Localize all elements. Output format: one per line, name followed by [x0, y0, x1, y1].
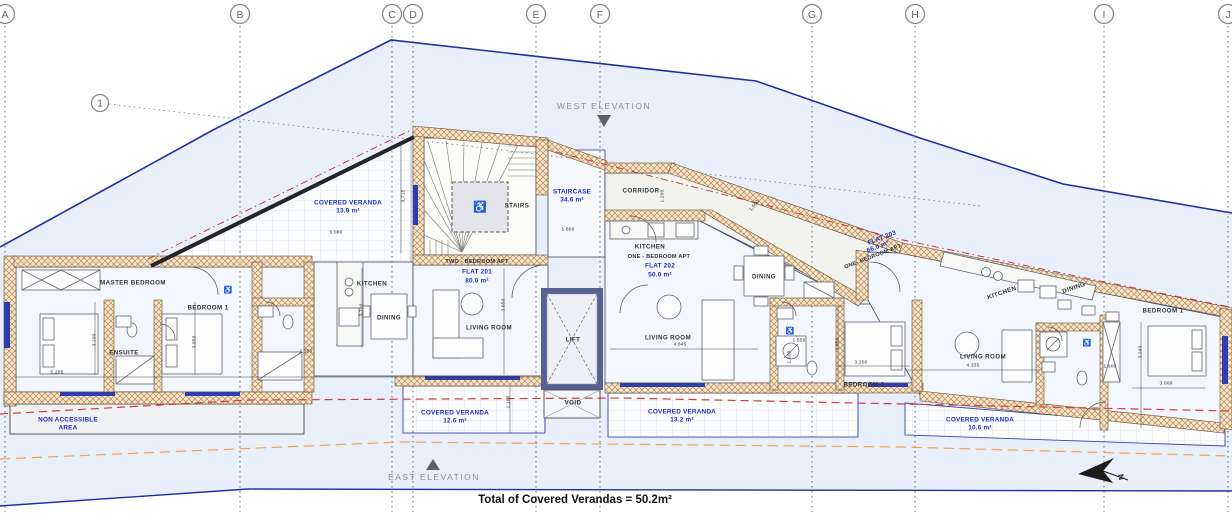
toilet [283, 315, 293, 329]
grid-marker-label-I: I [1103, 9, 1106, 21]
dining-table [744, 256, 784, 296]
grid-marker-label-F: F [597, 9, 603, 21]
sofa [1002, 330, 1032, 382]
grid-marker-label-1: 1 [97, 99, 103, 110]
floor-plan-canvas: ABCDEFGHIJ1 [0, 0, 1232, 521]
grid-marker-label-G: G [808, 9, 816, 21]
coffee-table [955, 332, 979, 356]
grid-marker-label-H: H [911, 9, 919, 21]
wardrobe [22, 270, 100, 290]
grid-marker-label-C: C [388, 9, 396, 21]
sofa [702, 300, 734, 380]
grid-marker-label-J: J [1225, 9, 1230, 21]
grid-marker-label-B: B [236, 9, 243, 21]
stair-platform [452, 182, 508, 232]
coffee-table [657, 295, 681, 319]
toilet [807, 361, 817, 375]
dining-table [371, 294, 407, 339]
grid-marker-label-D: D [409, 9, 417, 21]
coffee-table [461, 293, 483, 315]
grid-marker-label-E: E [532, 9, 539, 21]
toilet [1077, 371, 1087, 385]
kitchen-counter [337, 262, 363, 346]
grid-marker-label-A: A [1, 9, 8, 21]
floor-plan-page: ABCDEFGHIJ1 [0, 0, 1232, 521]
